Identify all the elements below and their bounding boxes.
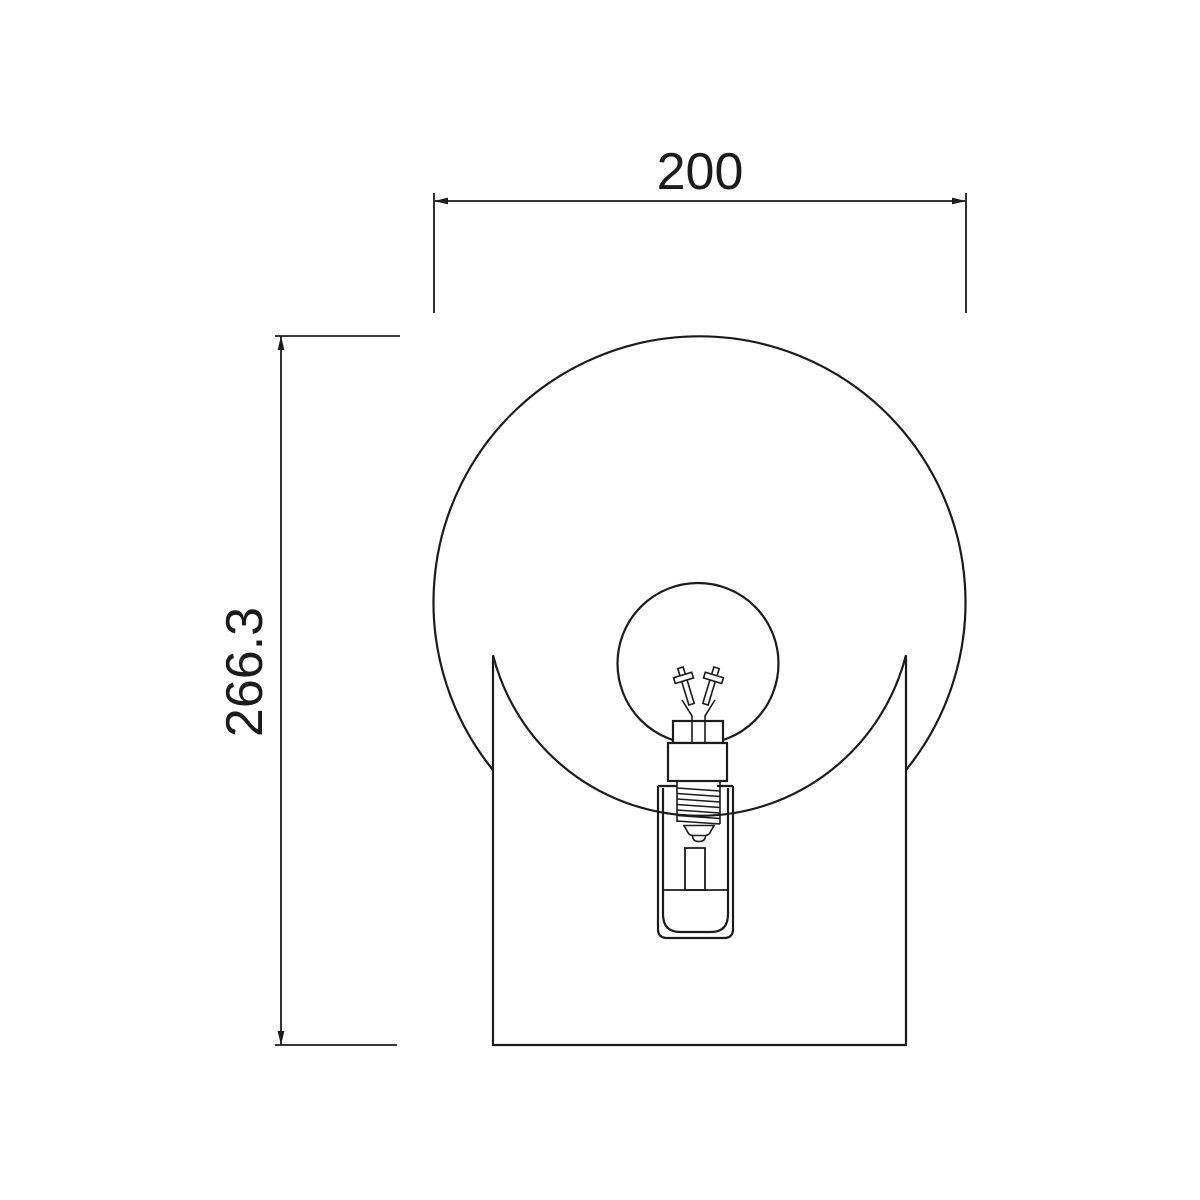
height-dimension-label: 266.3 xyxy=(216,607,274,737)
width-dimension-label: 200 xyxy=(657,143,744,201)
thread-ridge xyxy=(677,805,720,808)
thread-ridge xyxy=(677,788,720,791)
height-arrow-bottom xyxy=(278,1031,285,1045)
filament-electrode-right xyxy=(696,665,725,707)
filament-electrode-left xyxy=(671,665,700,707)
tip-trapezoid xyxy=(684,826,714,836)
height-arrow-top xyxy=(278,336,285,350)
width-arrow-left xyxy=(434,198,448,205)
width-dimension: 200 xyxy=(434,143,966,313)
holder-inner-outline xyxy=(663,788,728,932)
tip-nub xyxy=(693,836,706,842)
electrode-bar-left xyxy=(674,672,694,683)
socket-body xyxy=(668,743,727,781)
lamp-holder xyxy=(658,786,733,938)
thread-ridge xyxy=(677,794,720,797)
thread-ridge xyxy=(677,810,720,813)
holder-outer-outline xyxy=(658,786,733,938)
width-arrow-right xyxy=(952,198,966,205)
technical-drawing-page: 200 266.3 xyxy=(0,0,1200,1200)
thread-ridge xyxy=(677,821,720,824)
socket-cap xyxy=(673,721,723,743)
electrode-bar-right xyxy=(704,672,724,683)
thread-tip xyxy=(684,826,714,842)
wall-lamp-dimension-drawing: 200 266.3 xyxy=(0,0,1200,1200)
bulb-globe xyxy=(618,583,779,744)
height-dimension: 266.3 xyxy=(216,336,400,1045)
bracket-outline xyxy=(493,656,906,1045)
screw-thread xyxy=(677,782,720,824)
holder-slot xyxy=(685,848,705,890)
thread-ridge xyxy=(677,799,720,802)
